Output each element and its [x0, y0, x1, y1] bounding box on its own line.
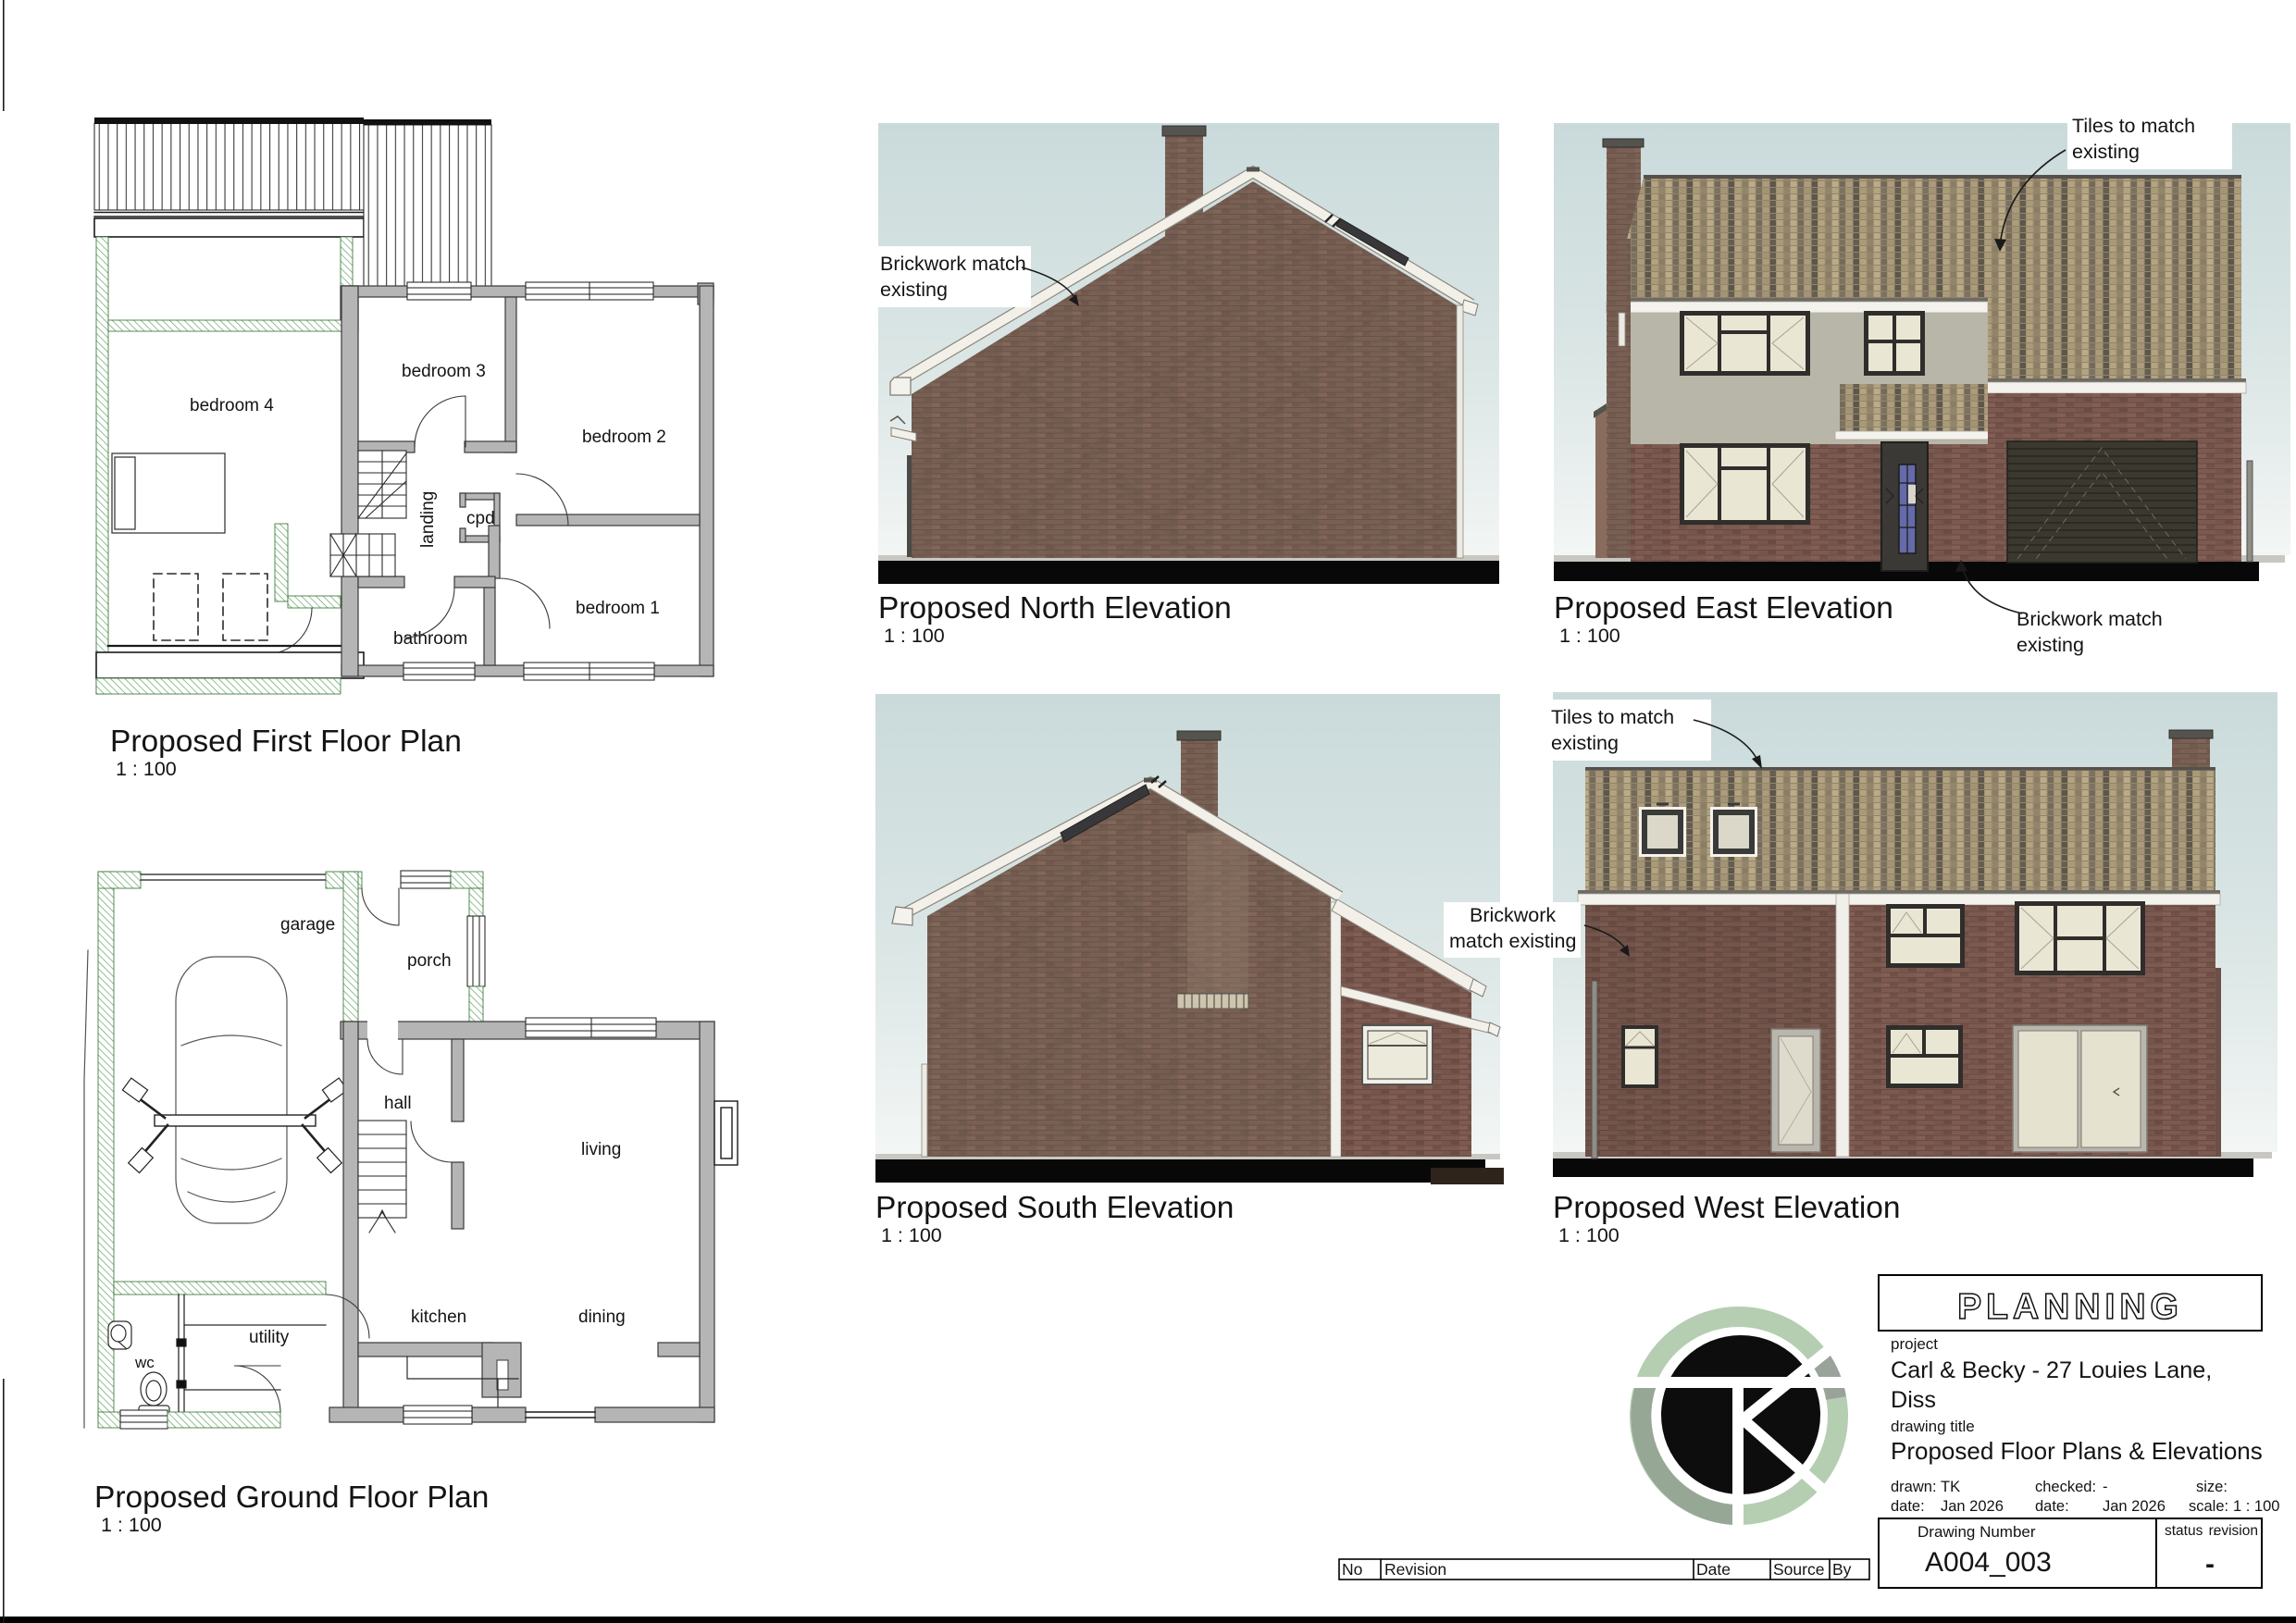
svg-text:bedroom 2: bedroom 2	[582, 427, 666, 447]
svg-text:By: By	[1832, 1560, 1852, 1579]
svg-text:date:: date:	[1891, 1498, 1925, 1515]
svg-text:1 : 100: 1 : 100	[881, 1224, 942, 1246]
svg-text:bedroom 4: bedroom 4	[190, 396, 274, 415]
svg-text:1 : 100: 1 : 100	[1559, 625, 1620, 647]
svg-text:Jan 2026: Jan 2026	[1941, 1498, 2004, 1515]
svg-text:Diss: Diss	[1891, 1387, 1936, 1413]
svg-text:existing: existing	[2017, 634, 2084, 656]
svg-text:garage: garage	[280, 915, 335, 935]
svg-text:checked:: checked:	[2035, 1479, 2096, 1495]
svg-text:bathroom: bathroom	[393, 629, 467, 649]
svg-text:1 : 100: 1 : 100	[1558, 1224, 1620, 1246]
svg-text:Tiles to match: Tiles to match	[1551, 706, 1674, 728]
svg-text:-: -	[2103, 1479, 2108, 1495]
svg-text:Source: Source	[1773, 1560, 1824, 1579]
svg-text:Brickwork match: Brickwork match	[880, 253, 1026, 275]
svg-text:hall: hall	[384, 1094, 412, 1113]
svg-text:project: project	[1891, 1335, 1938, 1353]
svg-text:Proposed North Elevation: Proposed North Elevation	[878, 591, 1232, 626]
svg-text:scale:: scale:	[2189, 1498, 2228, 1515]
svg-text:Tiles to match: Tiles to match	[2072, 115, 2195, 137]
svg-text:No: No	[1342, 1560, 1362, 1579]
svg-text:bedroom 3: bedroom 3	[402, 362, 486, 381]
svg-text:Proposed East Elevation: Proposed East Elevation	[1554, 591, 1893, 626]
svg-text:Proposed First Floor Plan: Proposed First Floor Plan	[110, 725, 462, 759]
svg-text:Proposed Ground Floor Plan: Proposed Ground Floor Plan	[94, 1481, 489, 1515]
svg-text:dining: dining	[578, 1307, 626, 1327]
svg-text:existing: existing	[1551, 732, 1619, 754]
svg-text:match existing: match existing	[1449, 930, 1576, 952]
svg-text:Brickwork: Brickwork	[1470, 904, 1556, 926]
svg-text:1 : 100: 1 : 100	[2233, 1498, 2279, 1515]
svg-text:-: -	[2205, 1549, 2215, 1580]
svg-text:Revision: Revision	[1384, 1560, 1446, 1579]
svg-text:1 : 100: 1 : 100	[884, 625, 945, 647]
svg-text:Drawing Number: Drawing Number	[1917, 1523, 2036, 1541]
svg-text:date:: date:	[2035, 1498, 2069, 1515]
svg-text:existing: existing	[2072, 141, 2140, 163]
svg-text:landing: landing	[418, 491, 438, 548]
svg-text:utility: utility	[249, 1328, 290, 1347]
svg-text:Date: Date	[1696, 1560, 1731, 1579]
svg-text:A004_003: A004_003	[1925, 1547, 2052, 1578]
svg-text:Proposed South Elevation: Proposed South Elevation	[875, 1191, 1234, 1225]
svg-text:size:: size:	[2196, 1479, 2228, 1495]
svg-text:Jan 2026: Jan 2026	[2103, 1498, 2166, 1515]
svg-text:porch: porch	[407, 951, 452, 971]
svg-text:Carl & Becky - 27 Louies Lane,: Carl & Becky - 27 Louies Lane,	[1891, 1357, 2212, 1383]
svg-text:existing: existing	[880, 279, 948, 301]
svg-text:bedroom 1: bedroom 1	[576, 599, 660, 618]
svg-text:drawing title: drawing title	[1891, 1418, 1975, 1435]
svg-text:1 : 100: 1 : 100	[116, 758, 177, 780]
svg-text:drawn:: drawn:	[1891, 1479, 1937, 1495]
svg-text:living: living	[581, 1140, 621, 1159]
svg-text:revision: revision	[2209, 1523, 2258, 1539]
svg-text:status: status	[2165, 1523, 2203, 1539]
svg-text:TK: TK	[1941, 1479, 1960, 1495]
svg-text:kitchen: kitchen	[411, 1307, 466, 1327]
svg-text:1 : 100: 1 : 100	[101, 1514, 162, 1536]
svg-text:wc: wc	[134, 1354, 155, 1371]
svg-text:Proposed West Elevation: Proposed West Elevation	[1553, 1191, 1901, 1225]
svg-text:PLANNING: PLANNING	[1957, 1287, 2183, 1327]
svg-text:Brickwork match: Brickwork match	[2017, 608, 2163, 630]
svg-text:Proposed Floor Plans & Elevati: Proposed Floor Plans & Elevations	[1891, 1437, 2263, 1465]
